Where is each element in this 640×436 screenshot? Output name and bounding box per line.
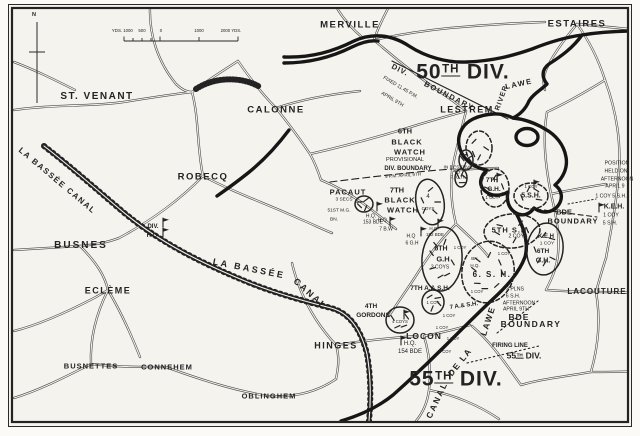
map-page: N MERVILLEESTAIRESST. VENANTCALONNEROBEC… bbox=[0, 0, 640, 436]
north-label: N bbox=[32, 12, 36, 18]
map-paper bbox=[8, 4, 632, 427]
map-canvas bbox=[0, 0, 640, 436]
